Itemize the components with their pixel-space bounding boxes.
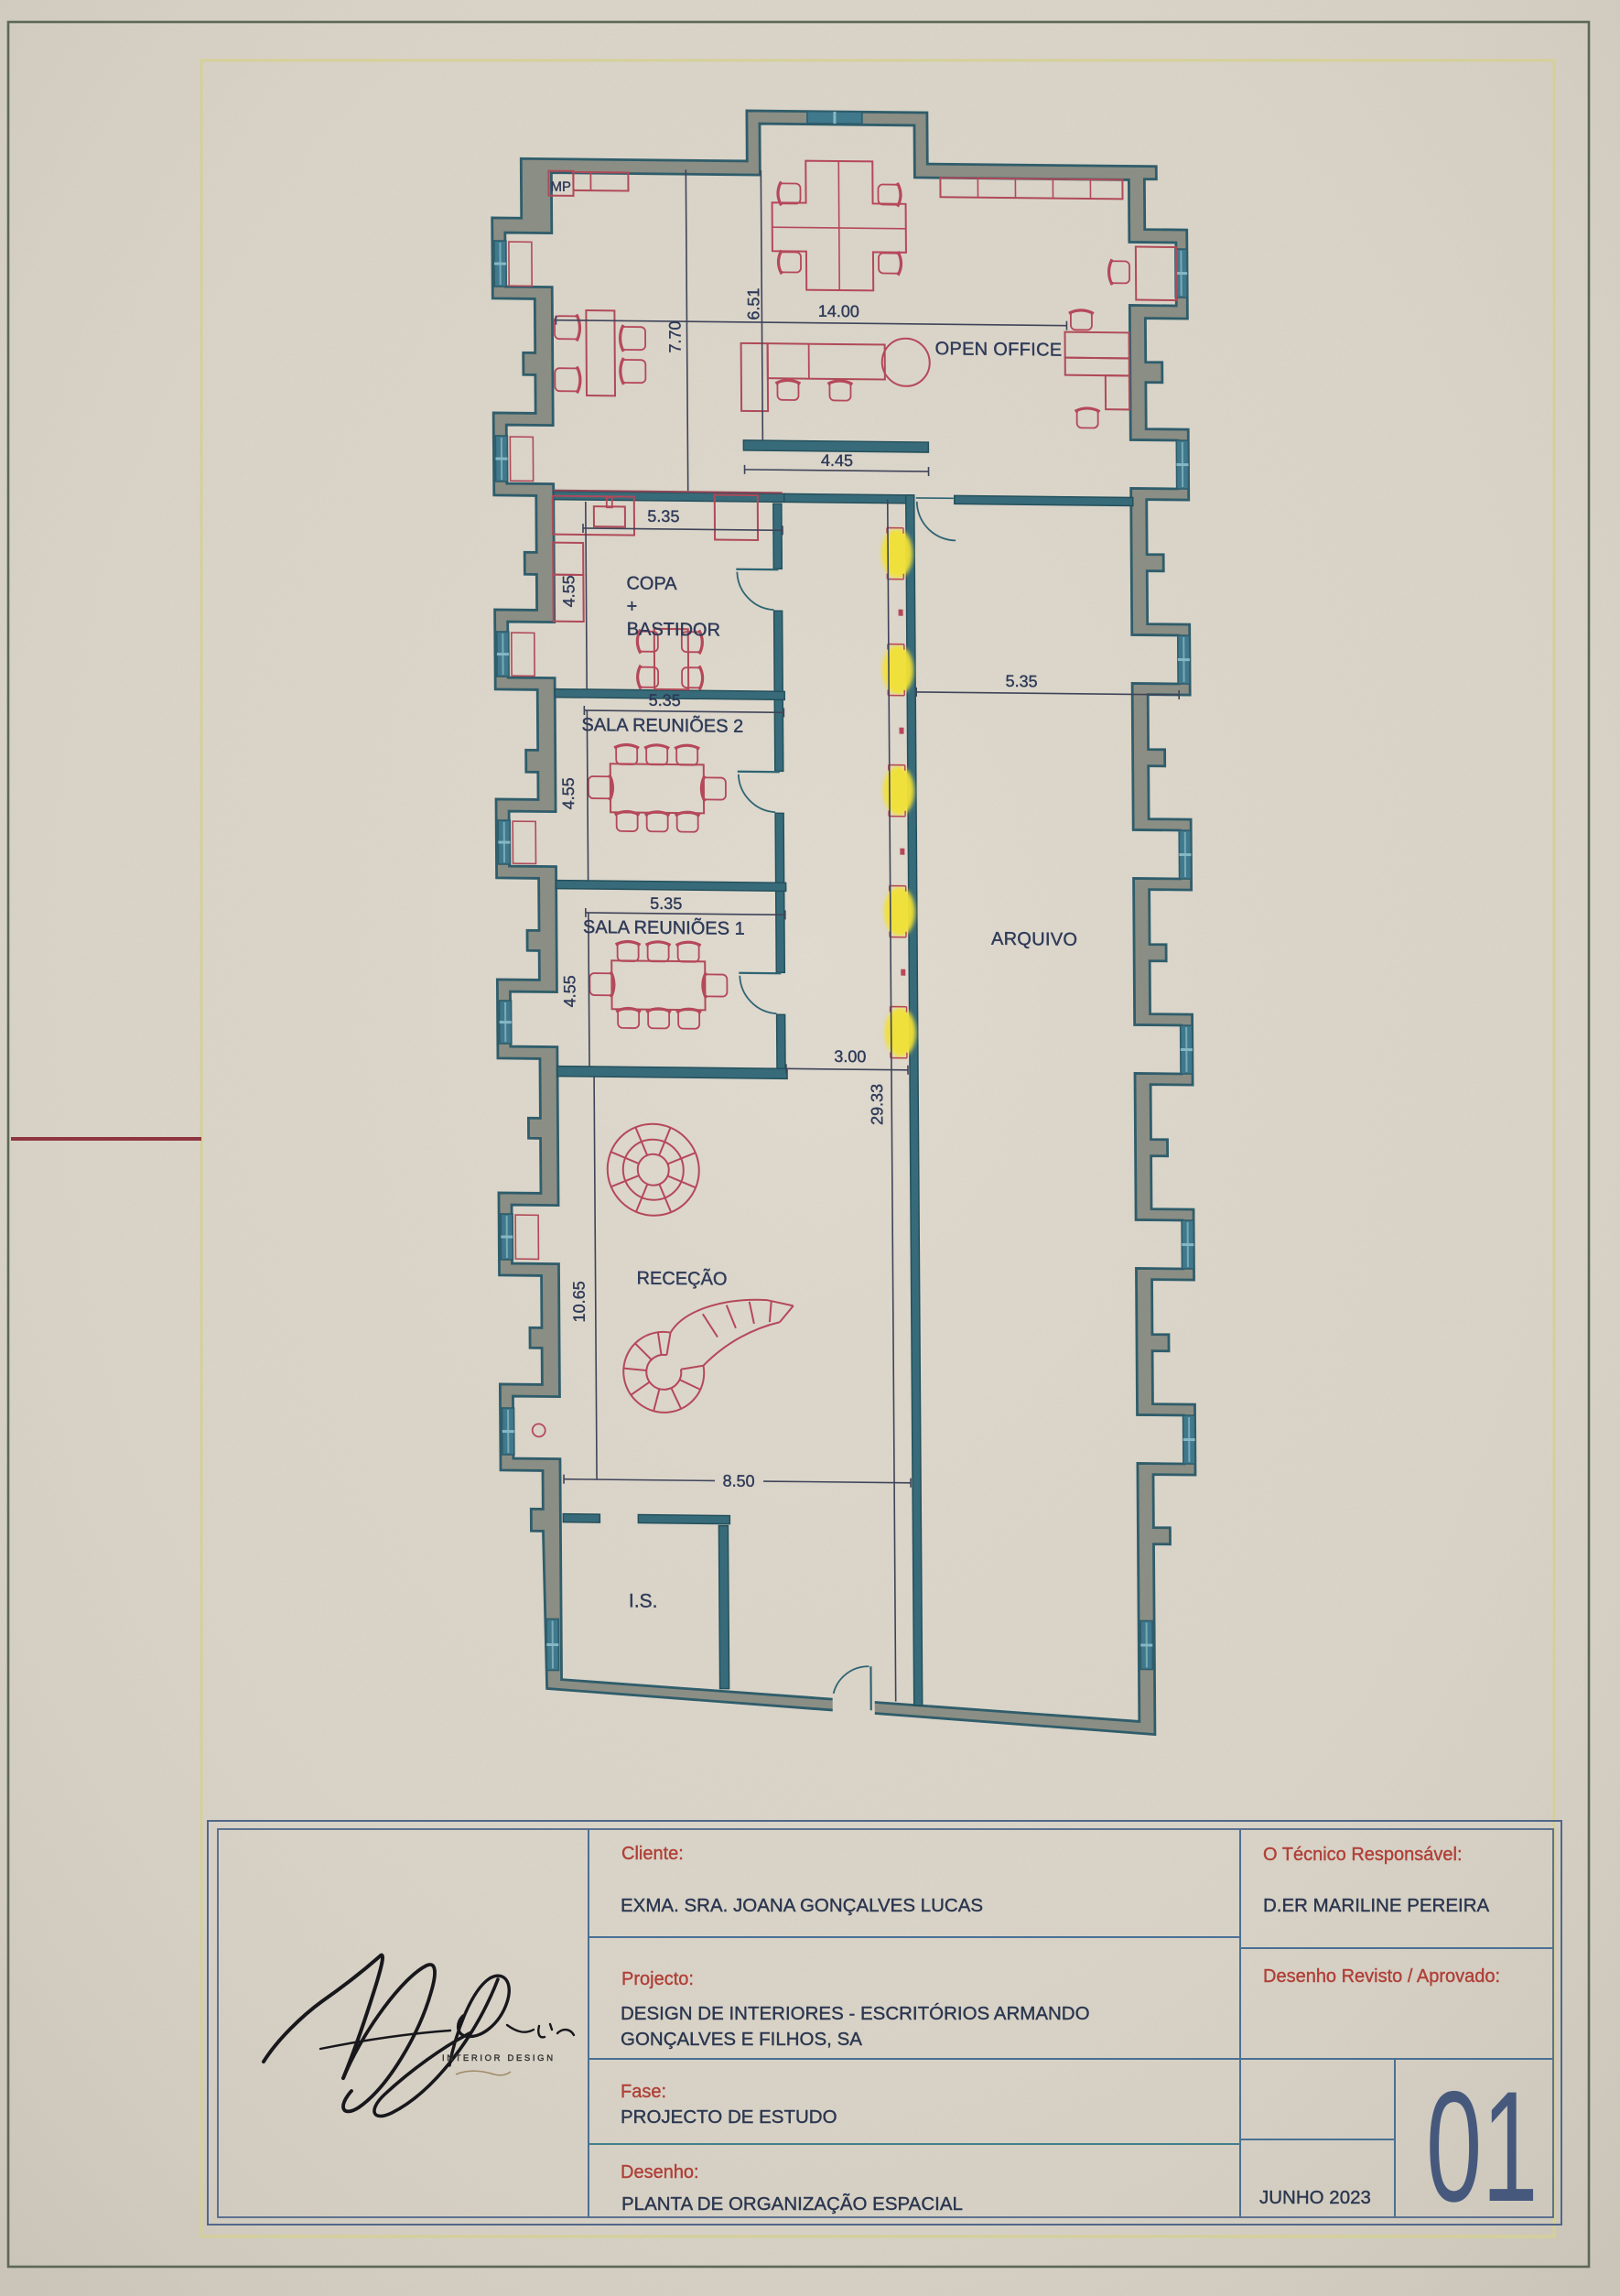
svg-text:5.35: 5.35: [1006, 672, 1038, 690]
svg-text:5.35: 5.35: [647, 507, 679, 525]
svg-text:6.51: 6.51: [744, 287, 762, 319]
svg-text:Projecto:: Projecto:: [621, 1969, 694, 1989]
svg-text:I.S.: I.S.: [629, 1590, 658, 1611]
svg-text:Desenho Revisto / Aprovado:: Desenho Revisto / Aprovado:: [1263, 1966, 1500, 1987]
svg-text:4.45: 4.45: [821, 451, 853, 470]
svg-text:O Técnico Responsável:: O Técnico Responsável:: [1263, 1845, 1463, 1865]
svg-text:14.00: 14.00: [818, 302, 859, 320]
svg-text:PLANTA DE ORGANIZAÇÃO ESPACIAL: PLANTA DE ORGANIZAÇÃO ESPACIAL: [621, 2193, 963, 2215]
svg-text:4.55: 4.55: [560, 975, 578, 1007]
svg-text:I N T E R I O R D E S I G N: I N T E R I O R D E S I G N: [442, 2053, 553, 2063]
svg-text:OPEN OFFICE: OPEN OFFICE: [935, 339, 1063, 360]
svg-text:DESIGN DE INTERIORES - ESCRITÓ: DESIGN DE INTERIORES - ESCRITÓRIOS ARMAN…: [621, 2003, 1090, 2024]
svg-text:Desenho:: Desenho:: [621, 2162, 699, 2182]
svg-text:GONÇALVES E FILHOS, SA: GONÇALVES E FILHOS, SA: [621, 2029, 862, 2050]
svg-text:Cliente:: Cliente:: [621, 1844, 684, 1864]
svg-text:EXMA. SRA. JOANA GONÇALVES LUC: EXMA. SRA. JOANA GONÇALVES LUCAS: [621, 1895, 983, 1916]
svg-text:10.65: 10.65: [570, 1281, 589, 1322]
svg-text:SALA REUNIÕES 1: SALA REUNIÕES 1: [583, 915, 745, 939]
svg-text:RECEÇÃO: RECEÇÃO: [636, 1267, 727, 1290]
svg-text:4.55: 4.55: [559, 777, 578, 809]
svg-text:7.70: 7.70: [665, 320, 684, 352]
svg-text:COPA: COPA: [626, 573, 677, 594]
svg-text:MP: MP: [550, 179, 571, 195]
svg-text:5.35: 5.35: [650, 894, 682, 913]
svg-text:BASTIDOR: BASTIDOR: [627, 619, 720, 640]
svg-text:29.33: 29.33: [868, 1084, 886, 1125]
svg-text:8.50: 8.50: [722, 1472, 754, 1490]
svg-text:D.ER MARILINE PEREIRA: D.ER MARILINE PEREIRA: [1263, 1895, 1490, 1916]
svg-text:4.55: 4.55: [559, 575, 578, 607]
svg-text:SALA REUNIÕES 2: SALA REUNIÕES 2: [581, 713, 743, 737]
svg-text:JUNHO 2023: JUNHO 2023: [1259, 2187, 1371, 2208]
svg-text:Fase:: Fase:: [621, 2082, 666, 2102]
svg-text:01: 01: [1426, 2058, 1538, 2235]
svg-text:ARQUIVO: ARQUIVO: [991, 929, 1077, 950]
svg-text:PROJECTO DE ESTUDO: PROJECTO DE ESTUDO: [621, 2106, 837, 2128]
svg-text:3.00: 3.00: [834, 1047, 866, 1066]
svg-text:5.35: 5.35: [649, 691, 681, 709]
svg-text:+: +: [627, 596, 638, 616]
